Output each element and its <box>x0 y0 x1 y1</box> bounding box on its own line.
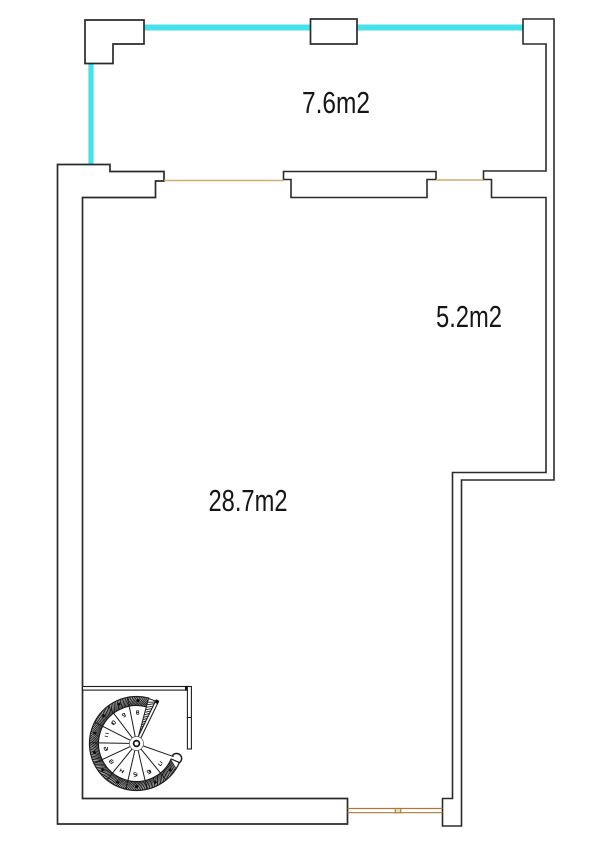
svg-text:5.2m2: 5.2m2 <box>436 299 502 334</box>
svg-text:28.7m2: 28.7m2 <box>209 483 288 518</box>
svg-text:7.6m2: 7.6m2 <box>302 85 370 120</box>
